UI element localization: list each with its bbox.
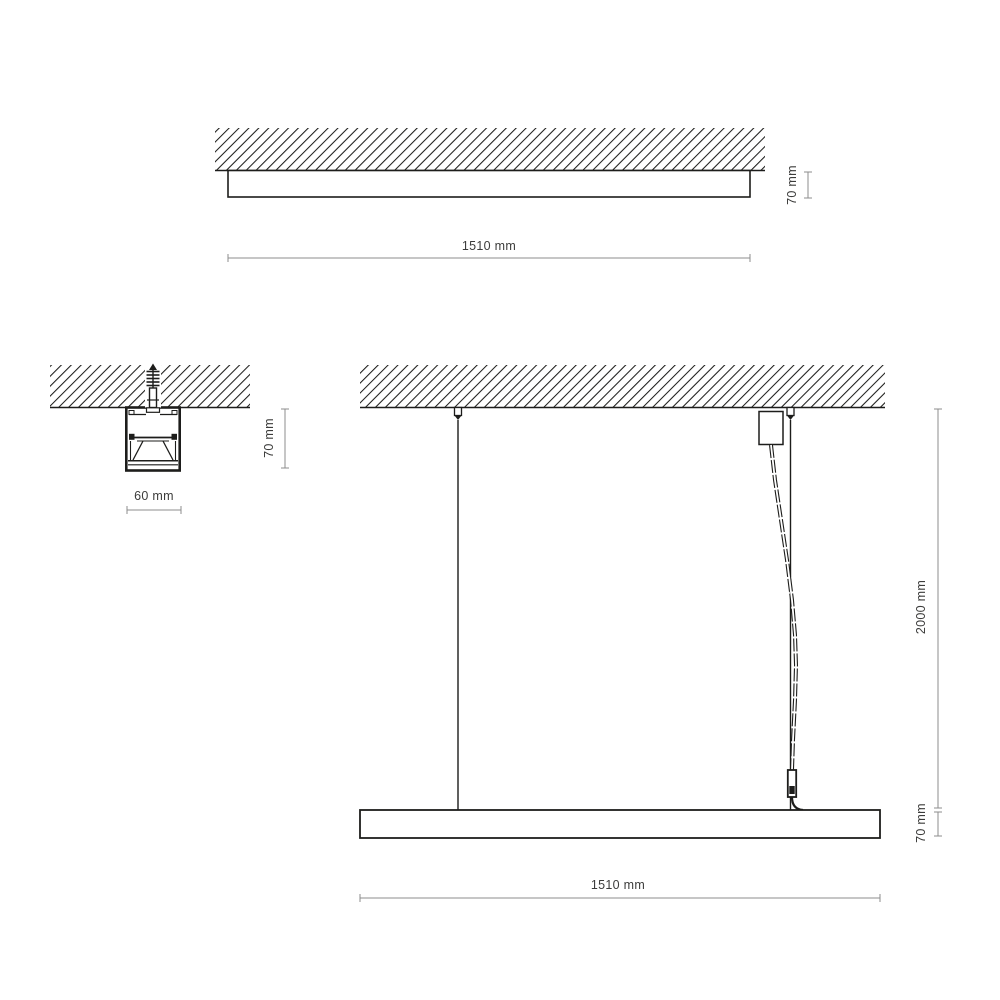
screw-head [147,408,160,413]
power-feed [759,412,803,811]
suspension-dimension-label: 2000 mm [914,580,928,634]
screw-channel-left [129,434,135,440]
suspension-dimension: 2000 mm [914,409,942,808]
height-dimension: 70 mm [914,803,942,843]
height-dimension: 70 mm [262,409,289,468]
suspended-view: 2000 mm 70 mm 1510 mm [360,365,942,902]
width-dimension: 60 mm [127,489,181,514]
height-dimension-label: 70 mm [262,418,276,458]
cross-section-view: 70 mm 60 mm [50,363,289,514]
driver-box [759,412,783,445]
length-dimension-label: 1510 mm [591,878,645,892]
screw-anchor [150,388,157,408]
ceiling-hatch [215,128,765,170]
ceiling-fixing-left [455,408,462,416]
height-dimension-label: 70 mm [785,165,799,205]
profile-section [126,408,179,471]
suspension-wire-left [455,408,462,811]
height-dimension-label: 70 mm [914,803,928,843]
screw-channel-right [172,434,178,440]
length-dimension-label: 1510 mm [462,239,516,253]
width-dimension-label: 60 mm [134,489,174,503]
luminaire-body [228,171,750,198]
ceiling-hatch [360,365,885,407]
ceiling-fixing-right [787,408,794,416]
mounting-screw [145,363,161,412]
technical-drawing-canvas: 70 mm 1510 mm [0,0,1000,1000]
length-dimension: 1510 mm [360,878,880,902]
surface-mounted-view: 70 mm 1510 mm [215,128,812,262]
luminaire-body [360,810,880,838]
length-dimension: 1510 mm [228,239,750,262]
height-dimension: 70 mm [785,165,812,205]
cable-hook [792,797,803,810]
